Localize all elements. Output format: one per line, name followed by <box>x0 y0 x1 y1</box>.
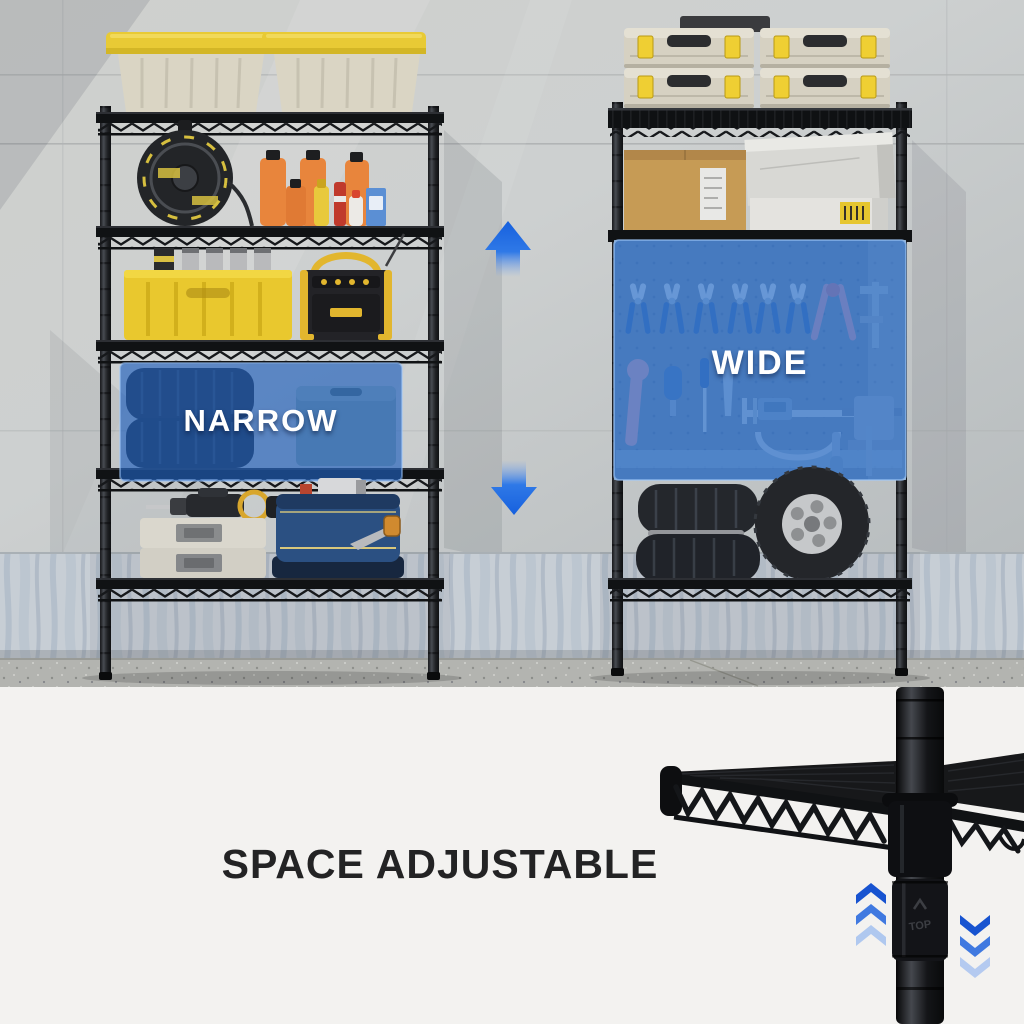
wide-highlight-region <box>614 240 906 480</box>
left-shelf-unit <box>96 32 444 680</box>
garage-floor <box>0 650 1024 687</box>
chevrons-up-icon <box>856 883 886 946</box>
narrow-highlight-region <box>120 363 402 481</box>
closeup-shelf-corner <box>660 753 1024 851</box>
pole-closeup: TOP <box>650 687 1024 1024</box>
garage-photo <box>0 0 1024 687</box>
oil-bottles <box>260 150 386 226</box>
space-adjustable-caption: SPACE ADJUSTABLE <box>180 841 700 888</box>
product-hero-image: NARROW WIDE SPACE ADJUSTABLE <box>0 0 1024 1024</box>
adjustable-pole: TOP <box>882 687 958 1024</box>
pole-closeup-photo: TOP <box>650 687 1024 1024</box>
garage-scene <box>0 0 1024 687</box>
chevrons-down-icon <box>960 915 990 978</box>
